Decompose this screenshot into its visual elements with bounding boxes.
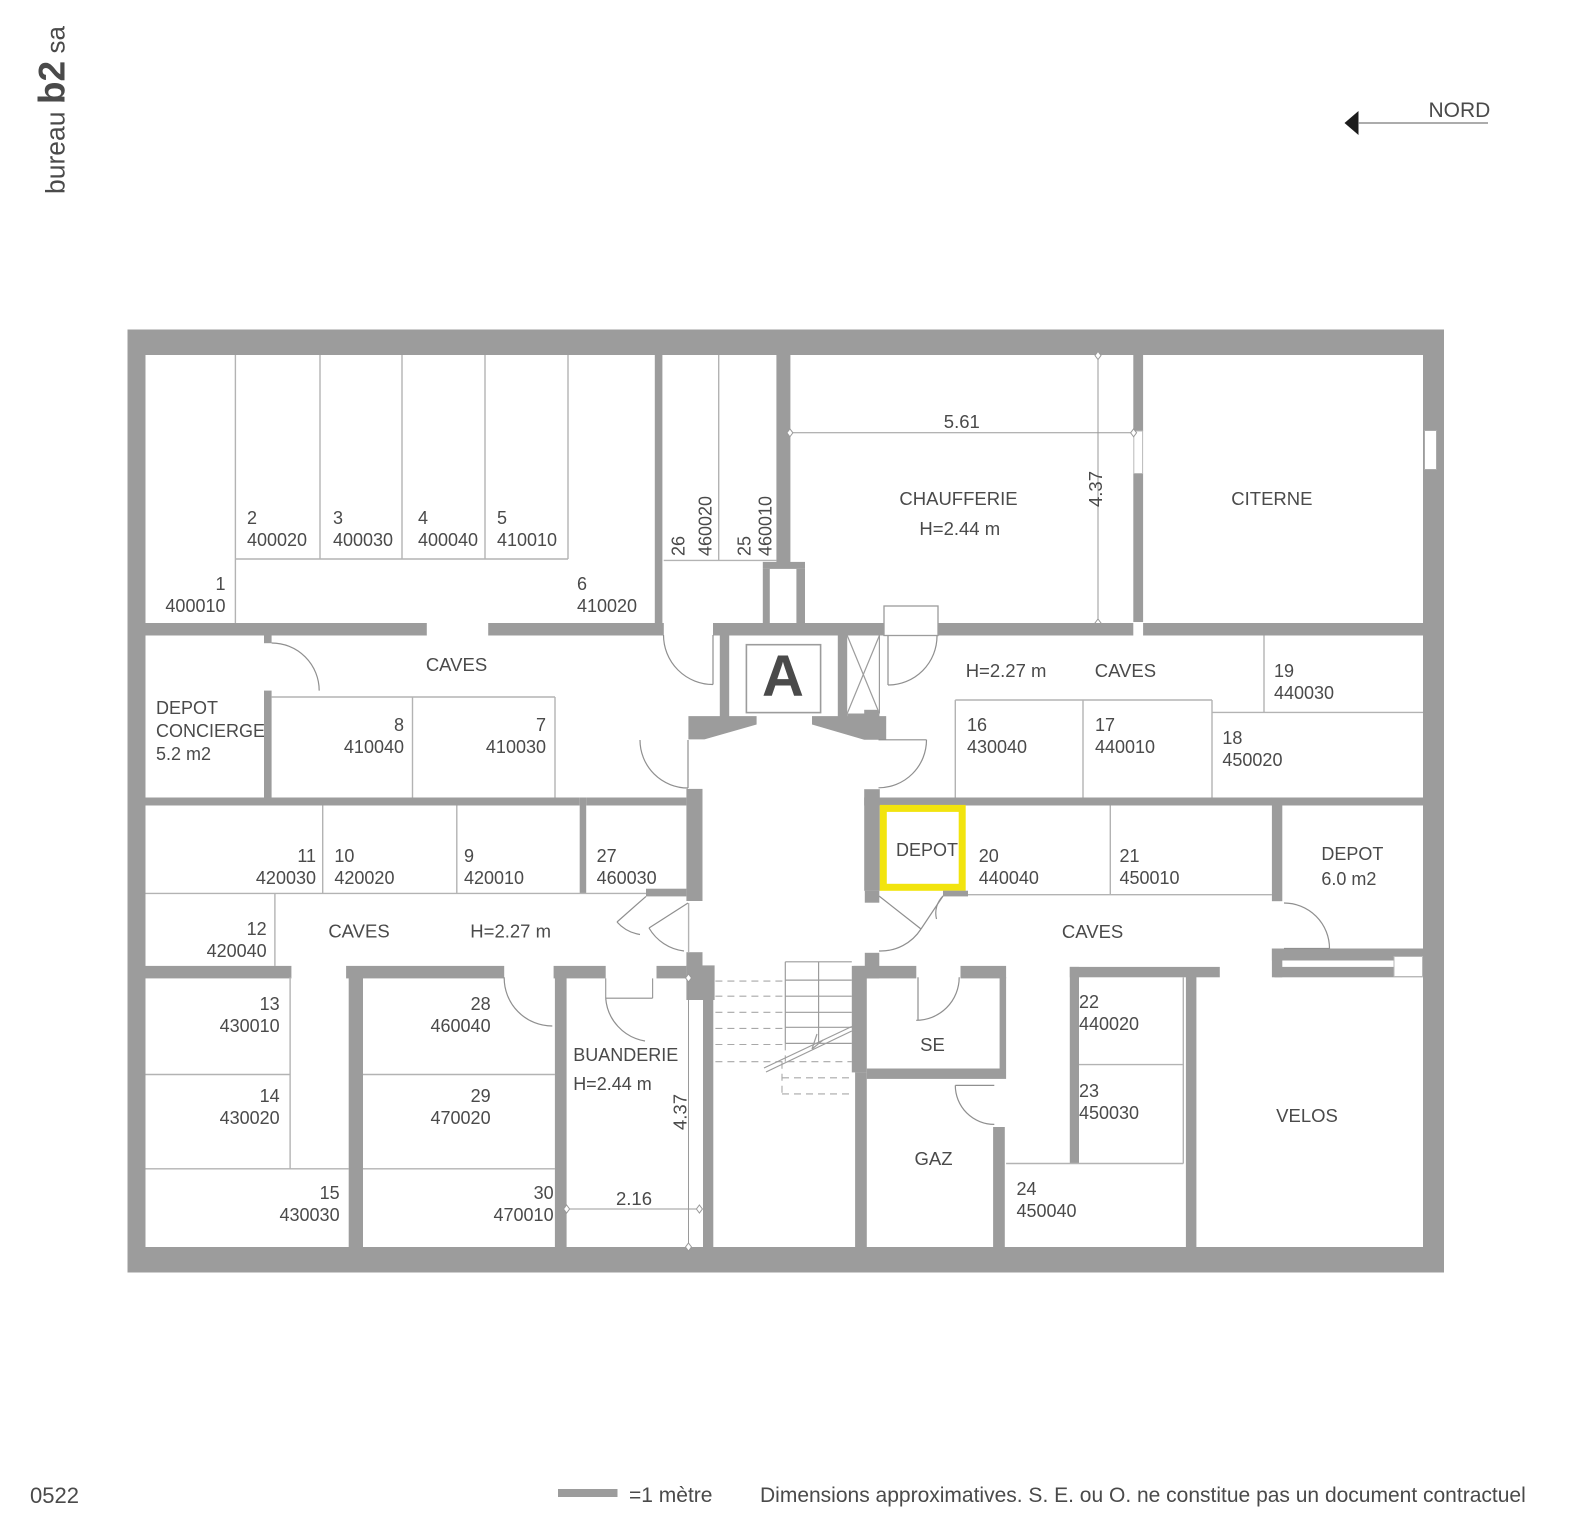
svg-text:410020: 410020 — [577, 596, 637, 616]
svg-text:7: 7 — [536, 715, 546, 735]
svg-text:4.37: 4.37 — [1085, 471, 1106, 507]
svg-text:440040: 440040 — [979, 868, 1039, 888]
svg-text:8: 8 — [394, 715, 404, 735]
svg-text:420010: 420010 — [464, 868, 524, 888]
svg-text:17: 17 — [1095, 715, 1115, 735]
svg-text:0522: 0522 — [30, 1483, 79, 1508]
svg-text:11: 11 — [297, 846, 316, 866]
svg-text:420020: 420020 — [334, 868, 394, 888]
svg-text:CAVES: CAVES — [1095, 660, 1156, 681]
svg-text:NORD: NORD — [1429, 99, 1491, 122]
svg-text:420040: 420040 — [207, 941, 267, 961]
svg-text:19: 19 — [1274, 661, 1294, 681]
svg-text:H=2.27 m: H=2.27 m — [470, 921, 551, 942]
svg-text:H=2.44 m: H=2.44 m — [919, 518, 1000, 539]
svg-text:2.16: 2.16 — [616, 1188, 652, 1209]
svg-text:26: 26 — [669, 536, 689, 556]
svg-text:6: 6 — [577, 574, 587, 594]
svg-text:DEPOT: DEPOT — [1321, 844, 1383, 864]
svg-text:9: 9 — [464, 846, 474, 866]
svg-text:3: 3 — [333, 508, 343, 528]
svg-text:=1 mètre: =1 mètre — [629, 1484, 712, 1507]
svg-text:30: 30 — [534, 1183, 554, 1203]
svg-text:25: 25 — [735, 536, 755, 556]
svg-text:Dimensions approximatives. S.: Dimensions approximatives. S. E. ou O. n… — [760, 1484, 1526, 1507]
svg-text:440030: 440030 — [1274, 683, 1334, 703]
svg-text:410030: 410030 — [486, 737, 546, 757]
svg-text:5: 5 — [497, 508, 507, 528]
svg-text:16: 16 — [967, 715, 987, 735]
svg-text:12: 12 — [247, 919, 267, 939]
svg-text:400010: 400010 — [165, 596, 225, 616]
svg-text:400030: 400030 — [333, 530, 393, 550]
svg-text:15: 15 — [320, 1183, 340, 1203]
svg-text:400040: 400040 — [418, 530, 478, 550]
svg-text:10: 10 — [334, 846, 354, 866]
svg-text:CHAUFFERIE: CHAUFFERIE — [899, 488, 1017, 509]
svg-text:430010: 430010 — [220, 1016, 280, 1036]
svg-text:CONCIERGE: CONCIERGE — [156, 721, 265, 741]
svg-text:430040: 430040 — [967, 737, 1027, 757]
svg-text:450010: 450010 — [1120, 868, 1180, 888]
svg-text:450040: 450040 — [1017, 1201, 1077, 1221]
svg-text:DEPOT: DEPOT — [896, 840, 958, 860]
svg-text:CAVES: CAVES — [426, 654, 487, 675]
svg-text:460030: 460030 — [597, 868, 657, 888]
svg-text:H=2.44 m: H=2.44 m — [573, 1074, 652, 1094]
svg-text:5.2 m2: 5.2 m2 — [156, 744, 211, 764]
svg-text:470010: 470010 — [494, 1205, 554, 1225]
svg-text:27: 27 — [597, 846, 617, 866]
svg-text:460010: 460010 — [756, 496, 776, 556]
svg-text:SE: SE — [920, 1034, 945, 1055]
svg-text:GAZ: GAZ — [914, 1148, 952, 1169]
svg-text:23: 23 — [1079, 1081, 1099, 1101]
svg-text:A: A — [762, 644, 804, 709]
svg-text:440020: 440020 — [1079, 1014, 1139, 1034]
svg-text:430020: 430020 — [220, 1108, 280, 1128]
svg-text:6.0 m2: 6.0 m2 — [1321, 869, 1376, 889]
svg-text:4: 4 — [418, 508, 428, 528]
svg-text:H=2.27 m: H=2.27 m — [966, 660, 1047, 681]
svg-text:430030: 430030 — [280, 1205, 340, 1225]
svg-text:VELOS: VELOS — [1276, 1105, 1338, 1126]
svg-text:4.37: 4.37 — [670, 1094, 691, 1130]
svg-text:2: 2 — [247, 508, 257, 528]
svg-text:460040: 460040 — [431, 1016, 491, 1036]
svg-text:450020: 450020 — [1222, 750, 1282, 770]
svg-text:BUANDERIE: BUANDERIE — [573, 1045, 678, 1065]
svg-text:5.61: 5.61 — [944, 411, 980, 432]
svg-text:DEPOT: DEPOT — [156, 698, 218, 718]
svg-text:CAVES: CAVES — [328, 921, 389, 942]
svg-text:420030: 420030 — [256, 868, 316, 888]
svg-text:13: 13 — [260, 994, 280, 1014]
svg-text:21: 21 — [1120, 846, 1140, 866]
svg-text:29: 29 — [471, 1086, 491, 1106]
svg-text:18: 18 — [1222, 728, 1242, 748]
svg-text:22: 22 — [1079, 992, 1099, 1012]
svg-text:460020: 460020 — [696, 496, 716, 556]
svg-text:470020: 470020 — [431, 1108, 491, 1128]
svg-text:28: 28 — [471, 994, 491, 1014]
svg-text:CITERNE: CITERNE — [1231, 488, 1312, 509]
svg-text:450030: 450030 — [1079, 1103, 1139, 1123]
svg-text:24: 24 — [1017, 1179, 1037, 1199]
svg-text:CAVES: CAVES — [1062, 921, 1123, 942]
svg-text:410040: 410040 — [344, 737, 404, 757]
svg-text:1: 1 — [215, 574, 225, 594]
svg-text:20: 20 — [979, 846, 999, 866]
svg-text:400020: 400020 — [247, 530, 307, 550]
svg-text:14: 14 — [260, 1086, 280, 1106]
svg-text:410010: 410010 — [497, 530, 557, 550]
svg-text:440010: 440010 — [1095, 737, 1155, 757]
